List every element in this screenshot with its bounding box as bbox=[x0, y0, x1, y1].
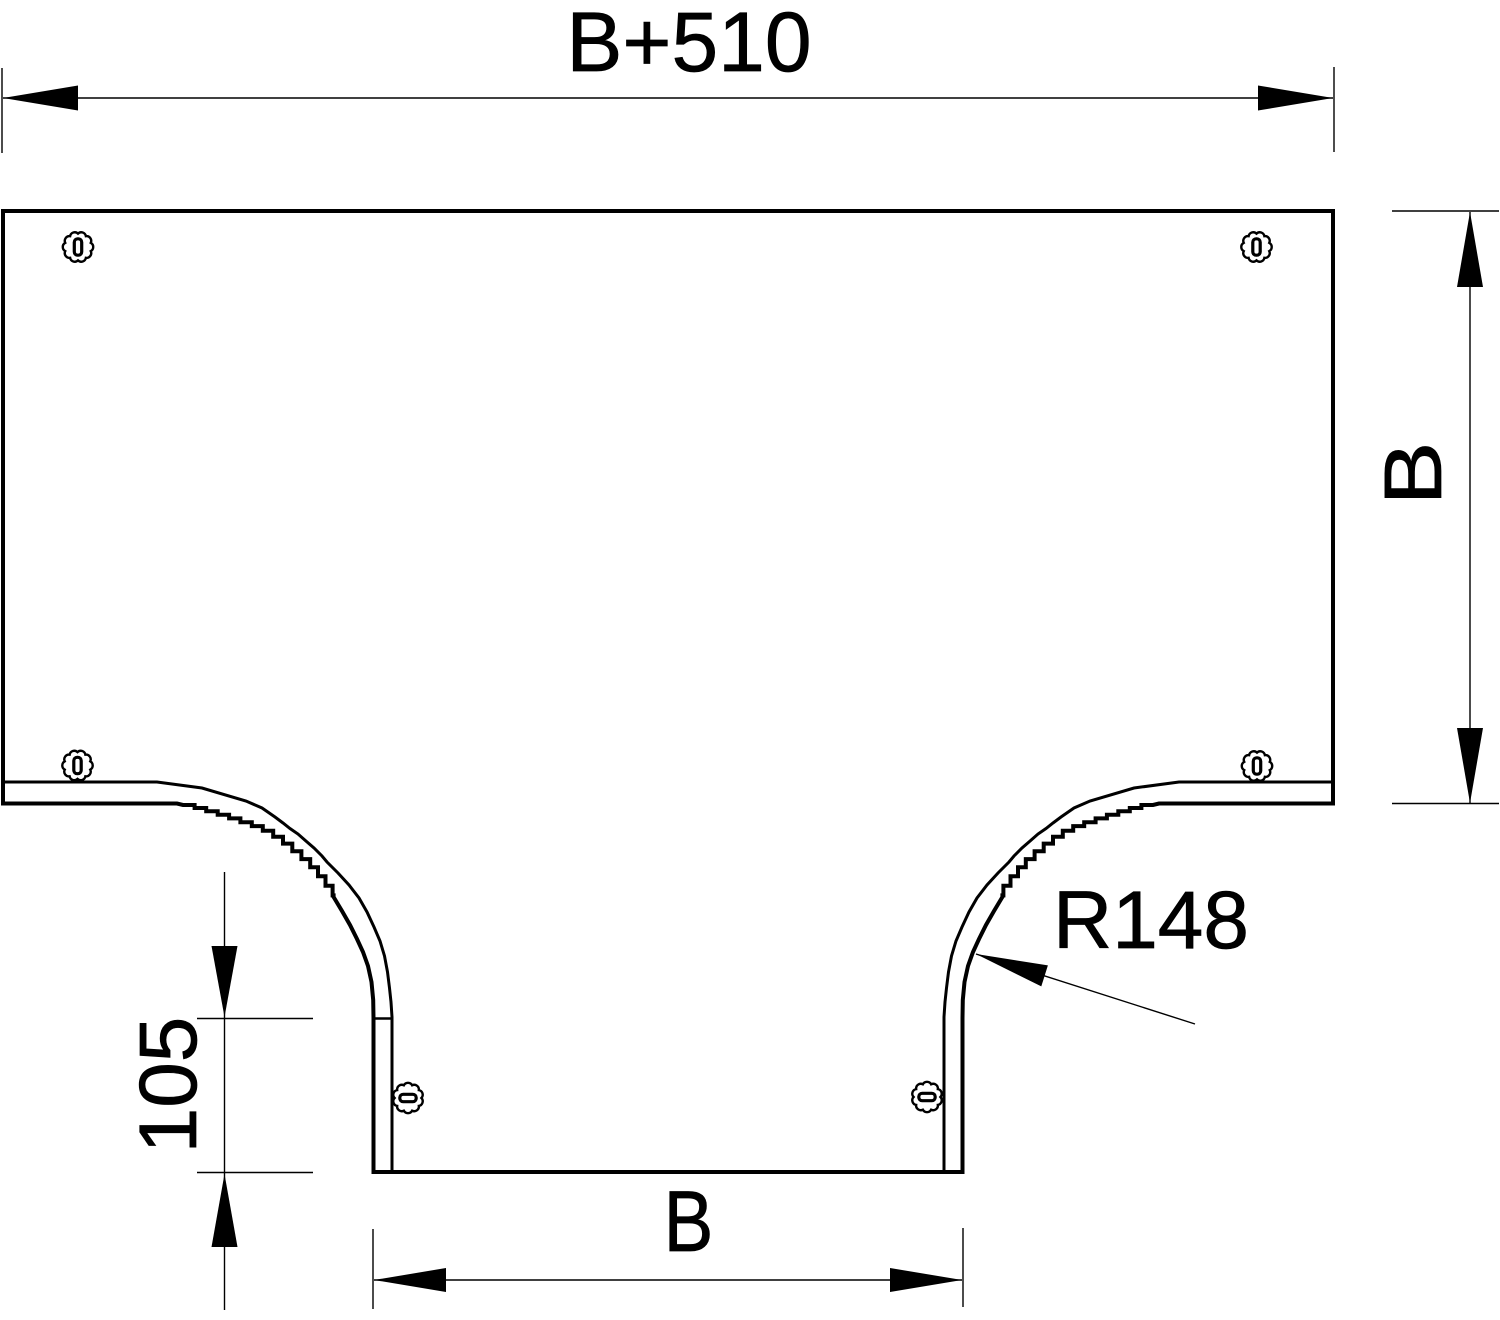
svg-text:B+510: B+510 bbox=[566, 0, 811, 89]
svg-text:R148: R148 bbox=[1053, 875, 1249, 966]
svg-text:B: B bbox=[1367, 442, 1459, 506]
svg-text:105: 105 bbox=[123, 1017, 214, 1154]
svg-text:B: B bbox=[664, 1174, 714, 1270]
